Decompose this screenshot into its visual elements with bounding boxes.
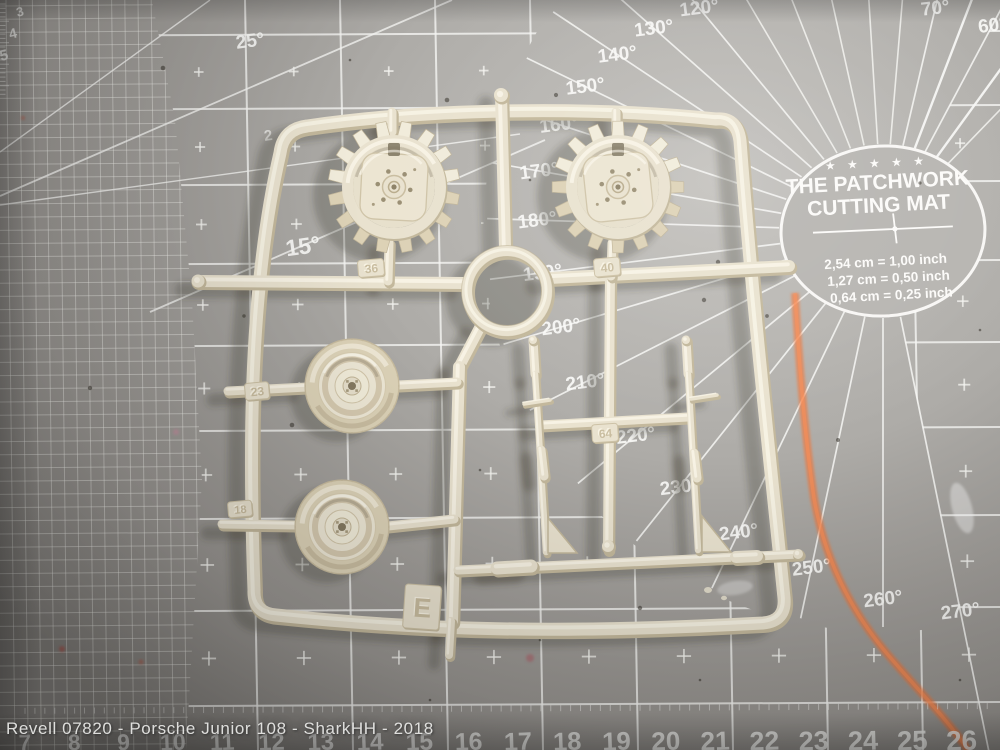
bottom-ruler-number: 18 [553,728,582,750]
sprocket-wheel-2 [552,121,684,253]
svg-text:E: E [412,593,432,624]
bottom-ruler-number: 16 [454,729,483,750]
part-tag-36: 3636 [357,258,386,279]
part-tag-64: 6464 [591,423,619,444]
bottom-ruler-number: 19 [602,728,632,750]
angle-label-15: 15° [284,231,322,262]
bottom-ruler-number: 26 [946,724,978,750]
cutting-mat-scene: 25° 15° 2 270°260°250°240°230°220°210°20… [0,0,1000,750]
bottom-ruler-number: 17 [503,728,532,750]
bottom-ruler-number: 24 [847,724,878,750]
svg-text:64: 64 [598,426,613,441]
svg-text:40: 40 [600,260,615,275]
bottom-ruler-number: 23 [798,725,829,750]
svg-text:23: 23 [250,384,265,399]
bottom-ruler-number: 22 [749,725,780,750]
road-wheel-1 [305,339,399,433]
bottom-ruler-number: 21 [700,726,730,750]
road-wheel-2 [295,480,389,574]
angle-label-25: 25° [235,29,266,54]
svg-text:36: 36 [364,261,379,276]
watermark-text: Revell 07820 - Porsche Junior 108 - Shar… [6,719,434,739]
photo-of-model-sprue-on-cutting-mat: 25° 15° 2 270°260°250°240°230°220°210°20… [0,0,1000,750]
part-tag-18: 1818 [227,500,253,520]
svg-text:18: 18 [234,504,247,517]
bottom-ruler-number: 25 [896,724,928,750]
part-tag-40: 4040 [593,257,622,279]
part-tag-23: 2323 [244,381,271,402]
sprue-letter-tag: EE [402,584,442,632]
bottom-ruler-number: 20 [651,726,681,750]
fan-angle-label: 60° [977,14,1000,38]
fan-angle-label: 70° [920,0,951,21]
